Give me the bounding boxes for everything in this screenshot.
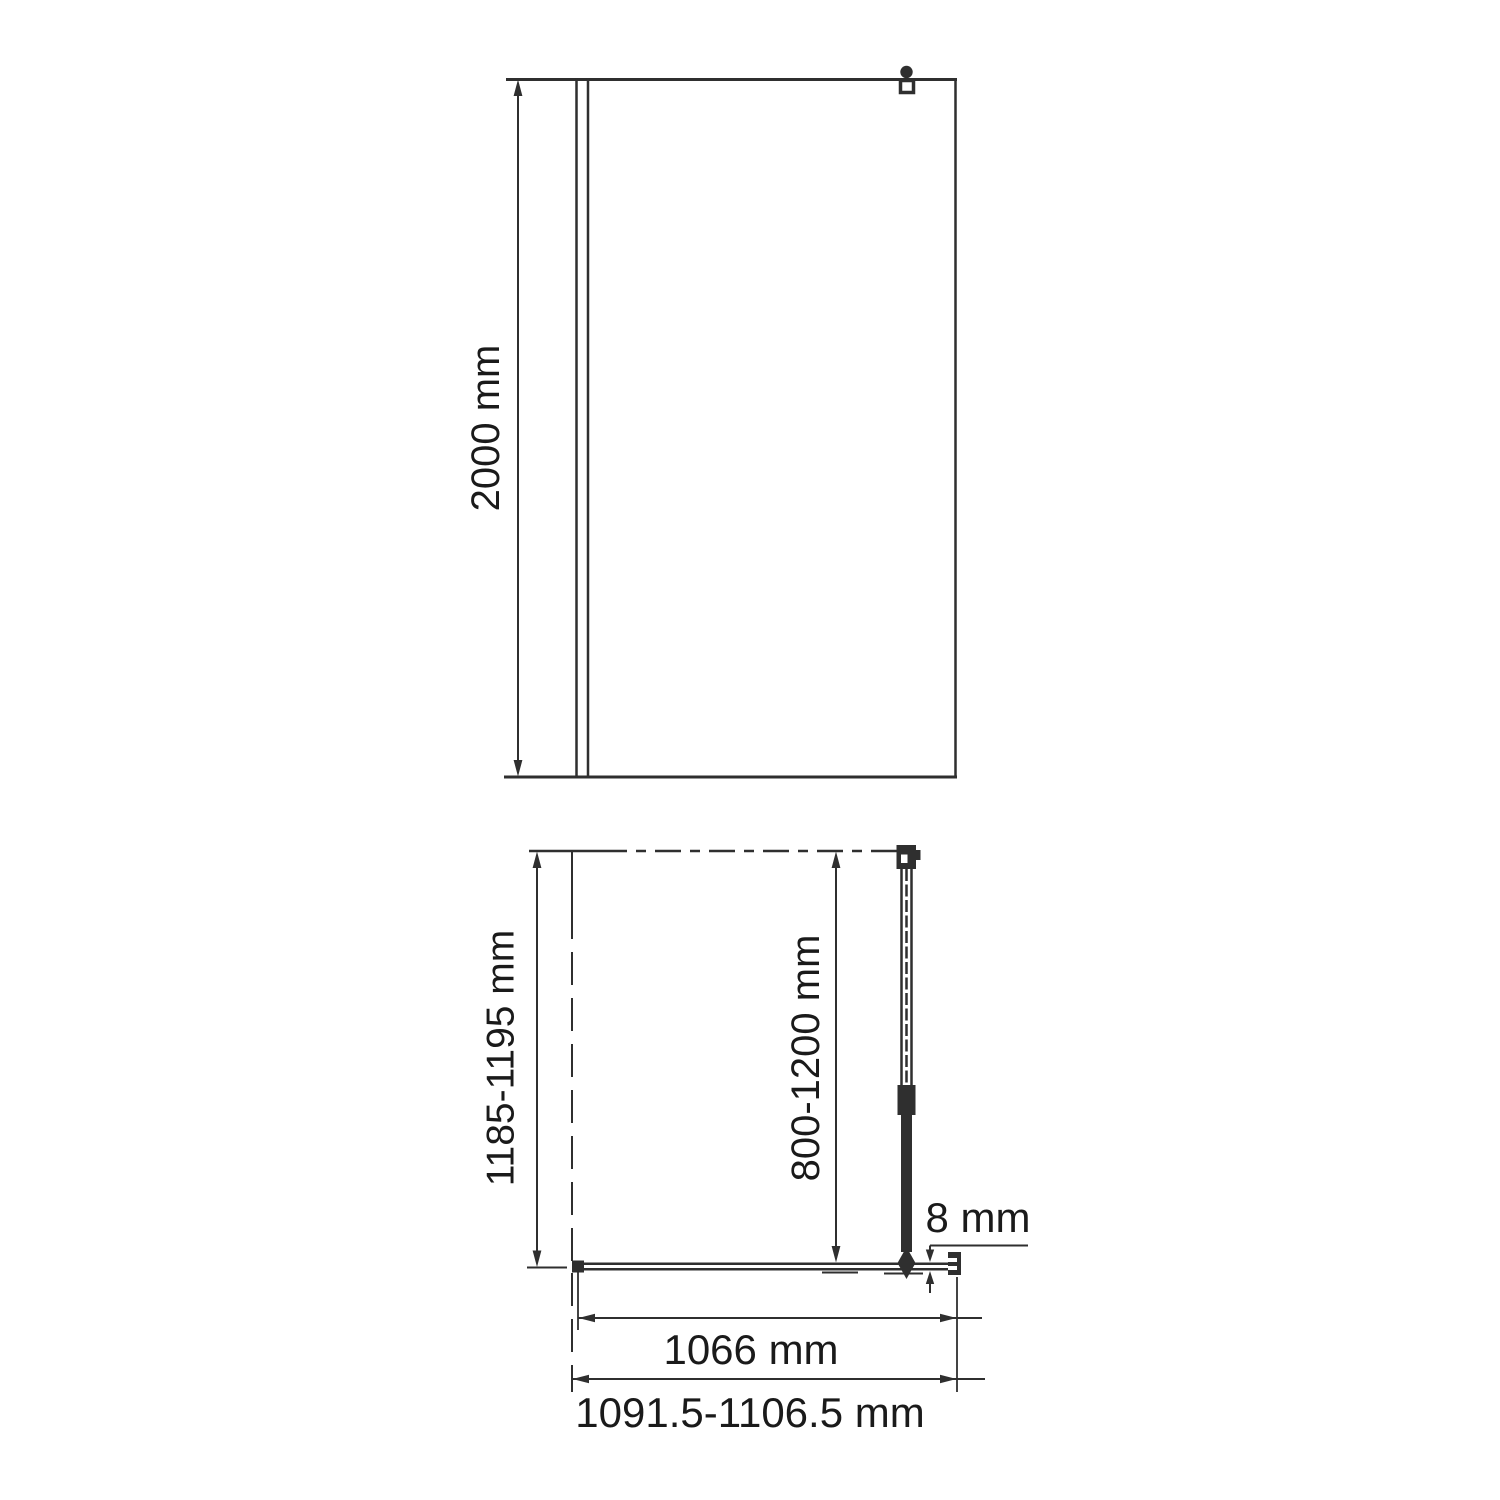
support-bar-plan — [884, 845, 923, 1279]
arrow-up-icon — [926, 1271, 934, 1284]
bar-lower-section — [901, 1115, 912, 1252]
overall-width-label: 1091.5-1106.5 mm — [575, 1392, 924, 1434]
glass-width-dimension-line — [578, 1314, 982, 1322]
arrow-right-icon — [940, 1375, 957, 1383]
arrow-left-icon — [573, 1375, 590, 1383]
support-bracket-front — [900, 66, 913, 93]
bar-lock-sleeve — [898, 1085, 916, 1115]
glass-end-clamp — [948, 1252, 961, 1275]
bracket-body — [901, 81, 914, 93]
arrow-left-icon — [579, 1314, 596, 1322]
plan-view — [527, 845, 1028, 1392]
arrow-up-icon — [832, 852, 841, 869]
line-work — [0, 0, 1500, 1500]
arrow-down-icon — [533, 1251, 542, 1268]
arrow-down-icon — [514, 760, 523, 777]
arrow-down-icon — [926, 1250, 934, 1263]
arrow-down-icon — [832, 1246, 841, 1263]
support-bar-length-label: 800-1200 mm — [786, 935, 826, 1182]
plan-depth-label: 1185-1195 mm — [482, 930, 521, 1187]
bar-bracket-notch — [901, 855, 908, 864]
arrow-up-icon — [533, 852, 542, 869]
bar-bracket-nub — [916, 850, 921, 860]
glass-plan — [572, 1261, 948, 1273]
arrow-up-icon — [514, 80, 523, 97]
depth-dimension-line — [527, 852, 567, 1268]
front-view — [504, 66, 957, 779]
height-dimension-line — [514, 80, 523, 777]
overall-width-dimension-line — [572, 1375, 985, 1383]
wall-profile-plan — [572, 1261, 584, 1273]
arrow-right-icon — [940, 1314, 957, 1322]
drawing-canvas: 2000 mm 1185-1195 mm 800-1200 mm 8 mm 10… — [0, 0, 1500, 1500]
glass-thickness-label: 8 mm — [926, 1197, 1031, 1239]
bracket-dome-icon — [900, 66, 912, 78]
front-height-label: 2000 mm — [466, 345, 506, 512]
glass-width-label: 1066 mm — [663, 1329, 838, 1371]
